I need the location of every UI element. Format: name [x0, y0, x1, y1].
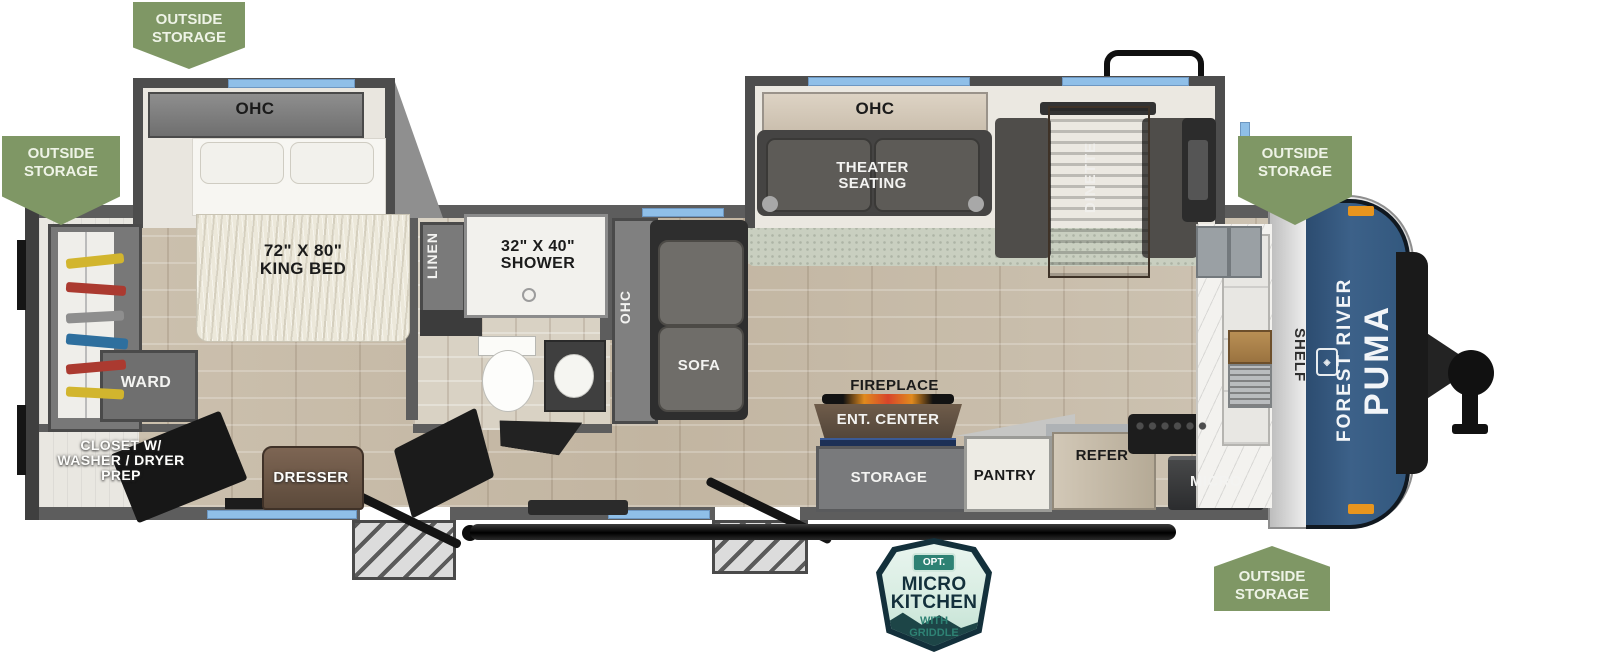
clearance-light-bottom [1348, 504, 1374, 514]
opt-pill: OPT. [912, 553, 956, 572]
bedroom-ohc-label: OHC [200, 100, 310, 118]
theater-seating-label: THEATER SEATING [790, 160, 955, 192]
griddle [1228, 364, 1272, 408]
model-name-label: PUMA [1358, 268, 1397, 452]
shelf-label: SHELF [1291, 328, 1308, 382]
outside-storage-badge-top-left: OUTSIDE STORAGE [133, 2, 245, 69]
tongue-jack-foot [1452, 424, 1488, 434]
tongue-jack-wheel [1448, 350, 1494, 396]
micro-kitchen-badge-face: OPT. MICRO KITCHEN WITH GRIDDLE [882, 544, 986, 646]
fireplace-insert [822, 394, 954, 404]
window-bed-slide [228, 79, 355, 88]
pantry-label: PANTRY [966, 468, 1044, 484]
overhead-cabinets-front [1196, 226, 1262, 278]
fireplace-label: FIREPLACE [832, 378, 957, 394]
outside-storage-badge-bottom: OUTSIDE STORAGE [1214, 546, 1330, 611]
dinette-bench-left [995, 118, 1051, 258]
window-bottom-rear [207, 510, 357, 519]
theater-cupholder-left [762, 196, 778, 212]
cooktop-burners [1134, 420, 1210, 432]
bath-sink [554, 354, 594, 398]
sofa-cushion-top [658, 240, 744, 326]
king-bed-label: 72" X 80" KING BED [228, 242, 378, 279]
shower-drain [522, 288, 536, 302]
shower-label: 32" X 40" SHOWER [478, 238, 598, 273]
ward-label: WARD [104, 374, 188, 391]
slideout-perspective-edge [395, 82, 443, 218]
window-top-mid [642, 208, 724, 217]
micro-label: MICRO [1172, 474, 1260, 490]
clearance-light-top [1348, 206, 1374, 216]
rear-bumper-upper [17, 240, 26, 310]
tv-screen [1188, 140, 1208, 200]
tongue-rock-guard [1396, 252, 1428, 474]
sofa-ohc-label: OHC [617, 290, 633, 324]
storage-label: STORAGE [822, 470, 956, 486]
entry-steps-rear [352, 520, 456, 580]
window-theater-slide-right [1062, 77, 1189, 86]
micro-kitchen-title: MICRO KITCHEN [882, 576, 986, 612]
toilet [482, 350, 534, 412]
entry-mat [528, 500, 628, 515]
refer-label: REFER [1056, 448, 1148, 464]
dinette-table [1048, 106, 1150, 278]
pillow-left [200, 142, 284, 184]
pillow-right [290, 142, 374, 184]
theater-ohc-label: OHC [800, 100, 950, 118]
ent-center-label: ENT. CENTER [822, 412, 954, 428]
micro-kitchen-badge: OPT. MICRO KITCHEN WITH GRIDDLE [876, 538, 992, 652]
shelf-wood [1228, 330, 1272, 364]
micro-kitchen-subtitle: WITH GRIDDLE [882, 616, 986, 639]
window-theater-slide-left [808, 77, 970, 86]
linen-label: LINEN [424, 232, 440, 279]
awning-roller [470, 524, 1176, 540]
theater-cupholder-right [968, 196, 984, 212]
closet-washer-dryer-label: CLOSET W/ WASHER / DRYER PREP [36, 438, 206, 483]
sofa-label: SOFA [658, 358, 740, 374]
dresser-label: DRESSER [264, 470, 358, 486]
dinette-label: DINETTE [1082, 142, 1099, 213]
brand-name-label: FOREST RIVER [1334, 238, 1356, 482]
rear-bumper-lower [17, 405, 26, 475]
floorplan-diagram: OUTSIDE STORAGE OUTSIDE STORAGE OUTSIDE … [0, 0, 1600, 661]
